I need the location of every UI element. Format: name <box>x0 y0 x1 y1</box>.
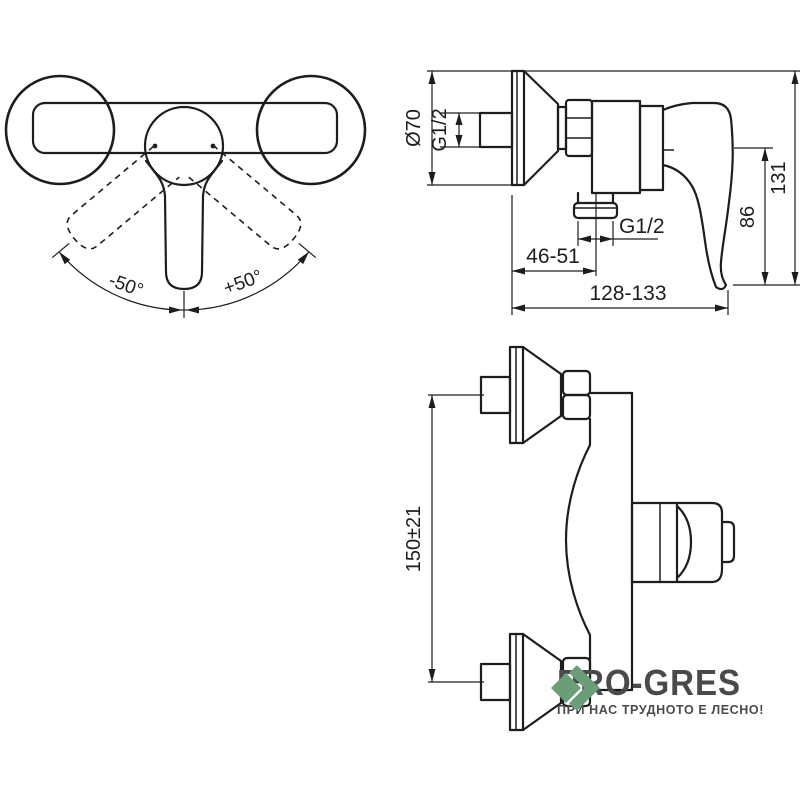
arrow <box>792 272 799 285</box>
arrow <box>578 236 591 243</box>
dim-label-centers-distance: 150±21 <box>403 506 425 573</box>
washer <box>558 107 566 149</box>
side-view: Ø70 G1/2 131 86 G1/2 46-51 <box>403 71 800 315</box>
handle-tab-top <box>722 522 734 562</box>
arrow <box>429 172 436 185</box>
angle-label-left: -50° <box>106 270 146 302</box>
arrow <box>600 236 613 243</box>
dim-label-outlet-thread: G1/2 <box>619 215 665 238</box>
wall-stub-top <box>481 377 510 413</box>
arrow <box>762 148 769 161</box>
front-view: -50° +50° <box>6 76 365 318</box>
body-contour-curve <box>566 419 590 690</box>
dim-label-outlet-height: 86 <box>737 206 759 228</box>
technical-drawing-page: -50° +50° Ø70 G1/2 <box>0 0 800 800</box>
escutcheon-plate <box>512 71 524 185</box>
arrow <box>583 268 596 275</box>
union-nut-top-facet <box>563 395 590 419</box>
dim-label-diameter: Ø70 <box>403 109 425 147</box>
mixer-body-bar <box>33 103 337 153</box>
lever-handle <box>146 161 222 289</box>
dim-label-wall-to-outlet: 46-51 <box>526 245 580 268</box>
dim-label-total-height: 131 <box>768 161 790 194</box>
escutcheon-cone <box>524 71 558 185</box>
lever-swing-left-dashed <box>189 146 307 254</box>
angle-label-right: +50° <box>221 266 266 299</box>
handle-dome-curve <box>677 506 691 578</box>
arrow <box>512 268 525 275</box>
cartridge-section <box>640 106 663 190</box>
escutcheon-cone-top <box>523 347 561 443</box>
handle-base-top <box>632 503 677 582</box>
arrow <box>512 305 525 312</box>
arrow <box>456 135 463 147</box>
union-nut <box>566 100 592 156</box>
dim-label-inlet-thread: G1/2 <box>429 108 451 151</box>
arrow <box>429 669 436 682</box>
wall-stub <box>480 113 512 147</box>
angle-tick-right <box>299 243 316 257</box>
pro-gres-logo: PRO-GRES ПРИ НАС ТРУДНОТО Е ЛЕСНО! <box>557 665 800 717</box>
wall-stub-bottom <box>481 664 510 700</box>
lever-swing-right-dashed <box>62 146 180 254</box>
lever-handle-side <box>663 103 733 289</box>
dome-mark-left <box>153 144 158 149</box>
logo-chevron-icon <box>549 665 605 711</box>
arrow <box>456 113 463 125</box>
arrow <box>715 305 728 312</box>
center-arrow-right <box>186 307 199 314</box>
arrow <box>762 272 769 285</box>
arrow <box>429 395 436 408</box>
left-escutcheon-circle <box>6 76 114 184</box>
dim-label-total-depth: 128-133 <box>589 282 666 305</box>
union-nut-top-facet <box>563 371 590 395</box>
dome-mark-right <box>211 144 216 149</box>
right-escutcheon-circle <box>257 76 365 184</box>
angle-tick-left <box>52 243 69 257</box>
arrow <box>792 71 799 84</box>
mixer-body-block <box>592 101 640 193</box>
arrow <box>429 71 436 84</box>
center-arrow-left <box>169 307 182 314</box>
